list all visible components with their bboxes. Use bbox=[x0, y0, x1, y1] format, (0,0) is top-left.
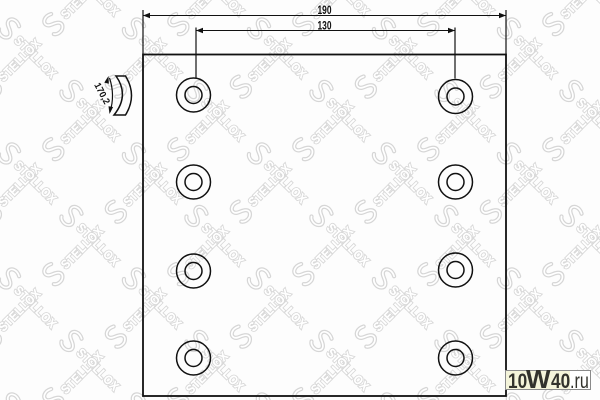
svg-text:190: 190 bbox=[318, 3, 332, 17]
svg-text:130: 130 bbox=[318, 19, 332, 33]
svg-text:170,2: 170,2 bbox=[91, 81, 112, 106]
